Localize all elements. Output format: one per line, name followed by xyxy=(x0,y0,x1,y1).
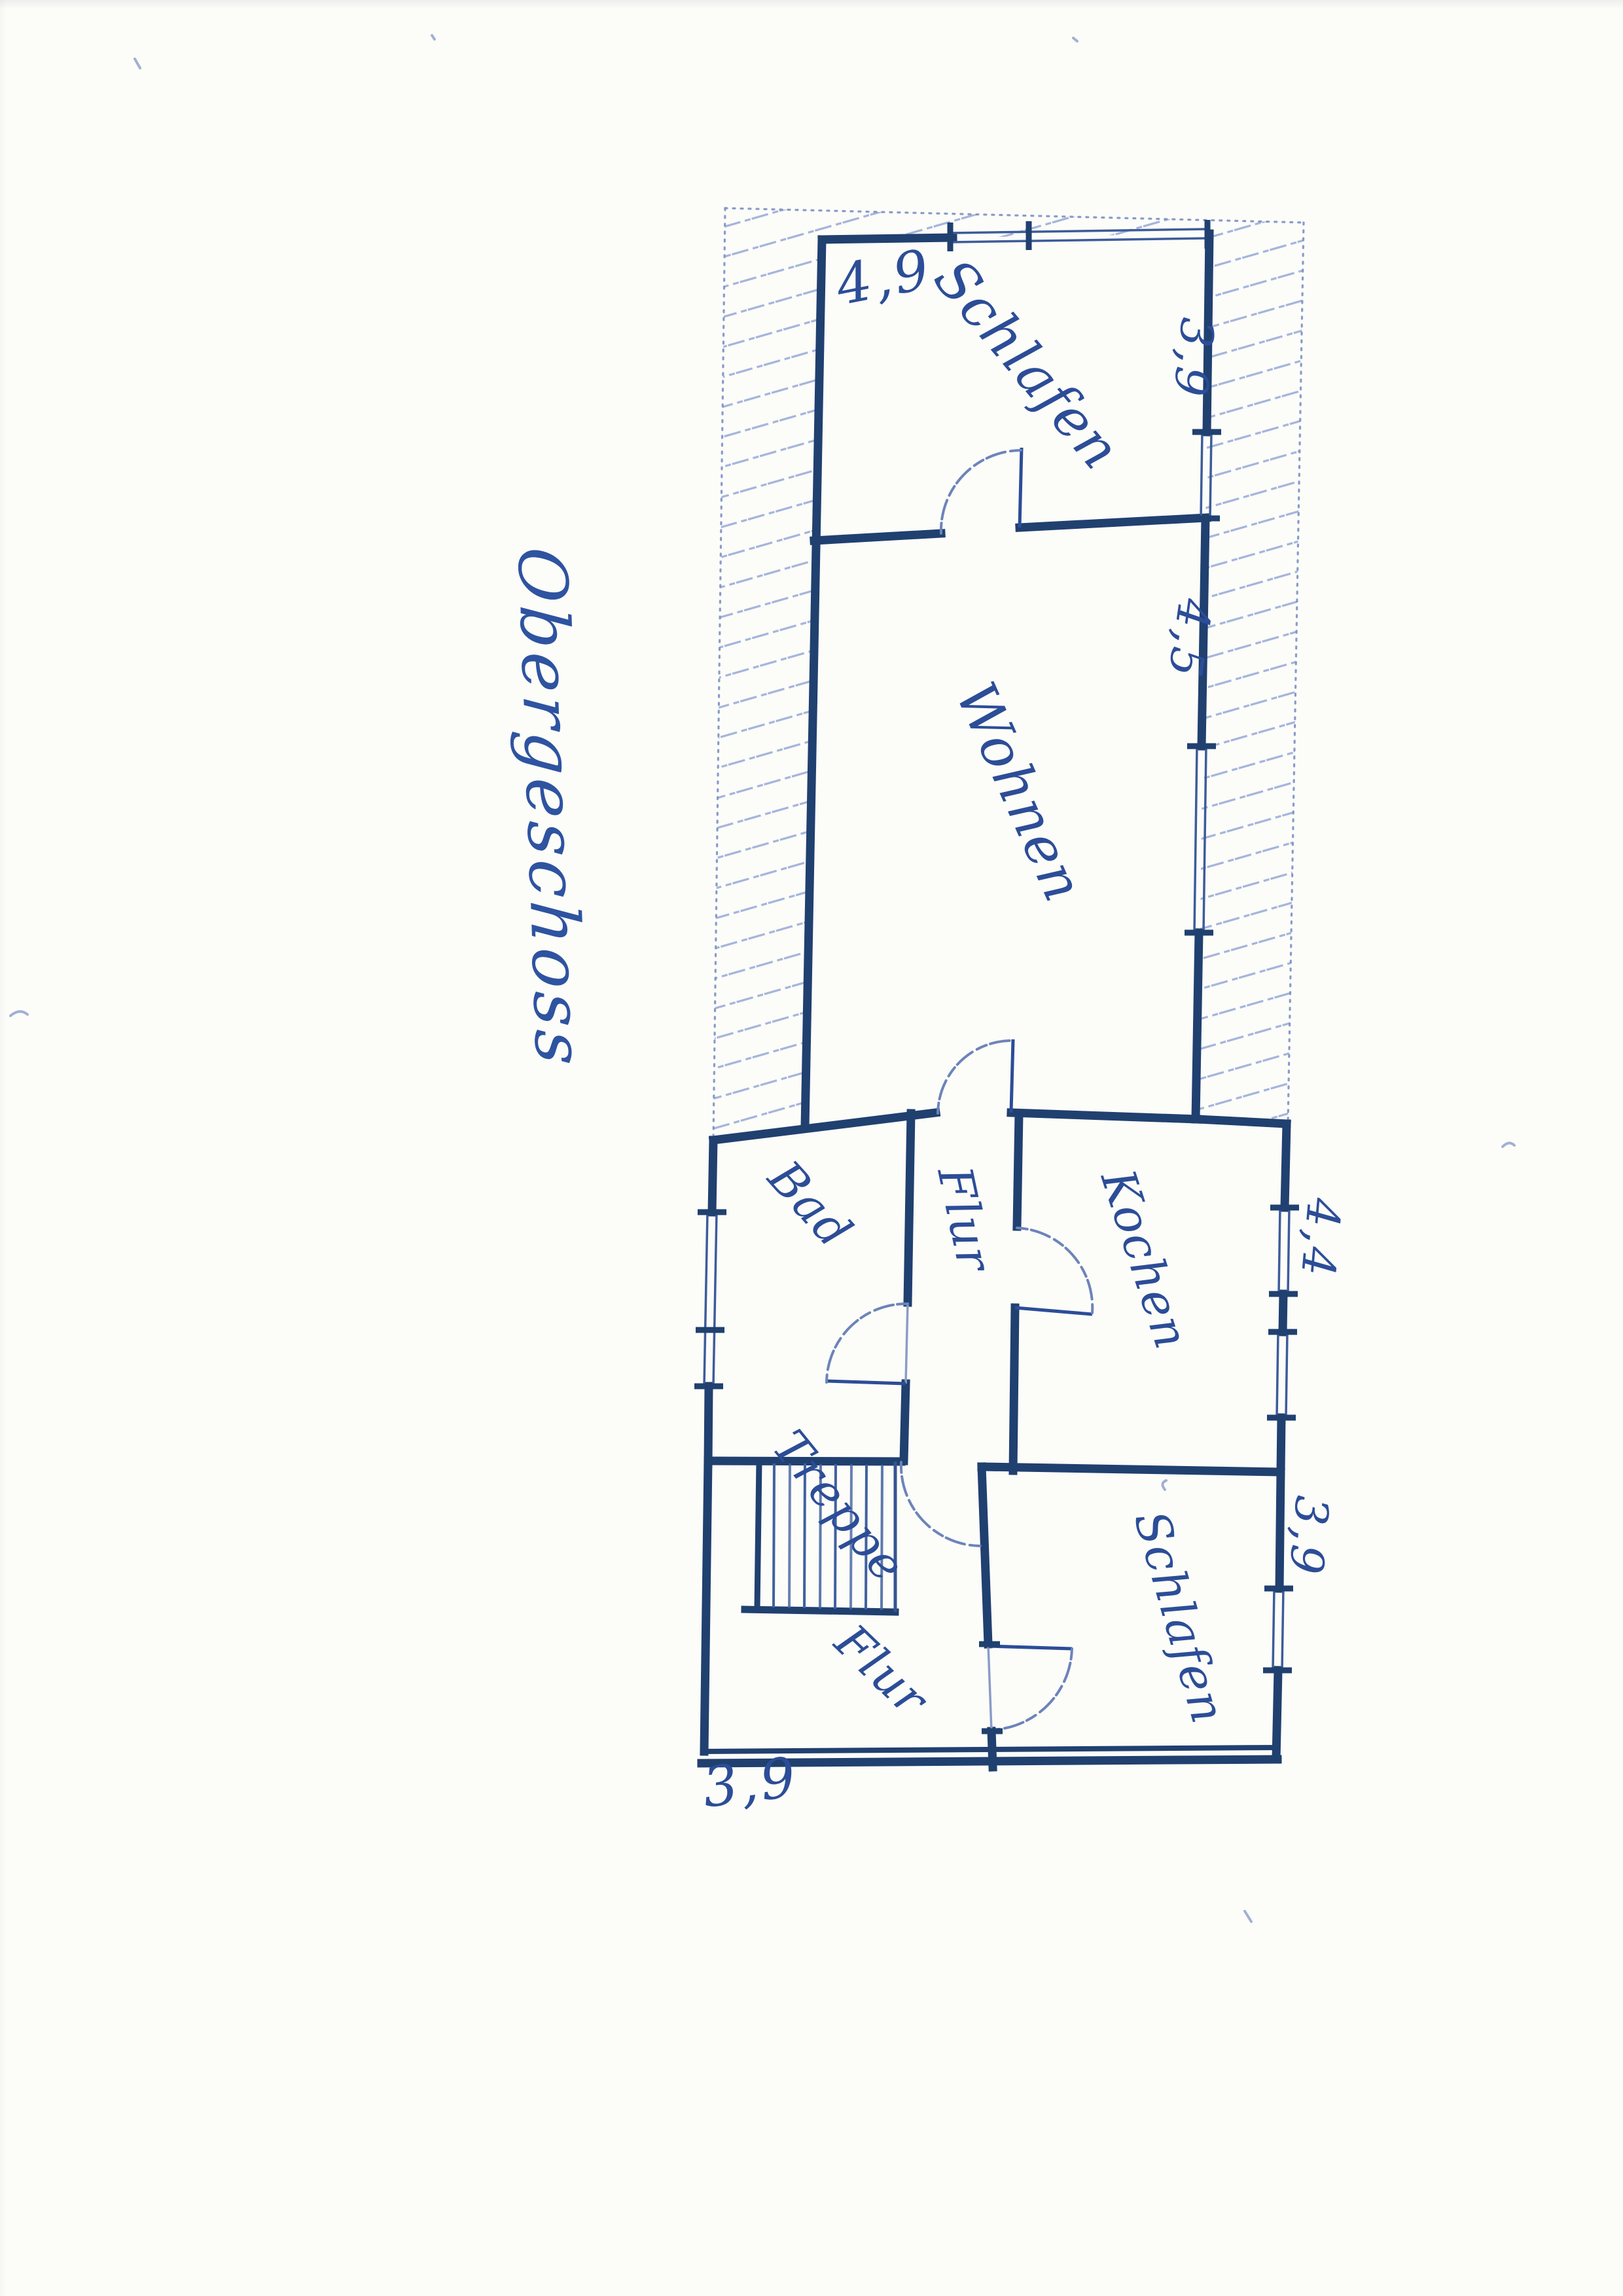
wall-kochen-top xyxy=(1198,1119,1287,1124)
room-label-kochen: Kochen xyxy=(1090,1162,1200,1356)
door-kochen xyxy=(1015,1228,1092,1314)
wall-bad-left-upper xyxy=(712,1140,713,1212)
window-schlafen-unten-right xyxy=(1263,1588,1293,1670)
speck-right-margin xyxy=(1503,1143,1514,1147)
room-label-bad: Bad xyxy=(757,1149,864,1259)
dim-top-width: 4,9 xyxy=(830,237,937,318)
speck-bottom xyxy=(1245,1911,1251,1922)
wall-wohnen-bottom-right xyxy=(1011,1113,1198,1119)
wall-right-lower xyxy=(1196,933,1199,1119)
window-bad-left xyxy=(694,1212,726,1386)
dim-schlafen-unten-depth: 3,9 xyxy=(1279,1494,1339,1579)
wall-bad-left-lower xyxy=(708,1386,709,1463)
dim-bottom-width: 3,9 xyxy=(699,1745,801,1820)
wall-kochen-right-lower xyxy=(1281,1418,1281,1472)
wall-top-left-segment xyxy=(822,238,953,240)
door-wohnen xyxy=(938,1039,1013,1113)
speck-left-margin xyxy=(10,1011,27,1016)
dim-wohnen-depth: 4,5 xyxy=(1158,595,1222,683)
wall-kochen-right-upper xyxy=(1285,1124,1287,1208)
room-label-schlafen-unten: Schlafen xyxy=(1124,1505,1237,1730)
door-bad xyxy=(827,1302,908,1384)
page-title: Obergeschoss xyxy=(502,545,598,1071)
room-label-treppe: Treppe xyxy=(762,1420,916,1592)
room-label-flur-unten: Flur xyxy=(824,1613,940,1727)
wall-divider-flur-kochen-upper xyxy=(1017,1114,1019,1227)
stair-bottom-edge xyxy=(745,1609,895,1612)
room-label-schlafen-top: Schlafen xyxy=(921,247,1133,482)
speck-top-left xyxy=(135,59,140,68)
wall-divider-flur-schlafen-unten xyxy=(982,1467,988,1644)
wall-divider-schlafen-wohnen-right xyxy=(1020,518,1207,528)
wall-divider-flur-kochen-lower xyxy=(1013,1308,1015,1471)
wall-divider-bad-flur-lower xyxy=(904,1384,906,1461)
dim-schlafen-top-depth: 3,9 xyxy=(1163,315,1224,401)
speck-top-center xyxy=(432,35,435,39)
wall-divider-bad-flur-upper xyxy=(908,1113,911,1302)
room-label-flur-mitte: Flur xyxy=(927,1160,1003,1278)
stair-left-edge xyxy=(757,1462,759,1609)
floorplan-canvas: Obergeschoss Schlafen Wohnen Bad Flur Ko… xyxy=(0,0,1623,2296)
room-label-wohnen: Wohnen xyxy=(943,673,1096,911)
scanned-floorplan-page: Obergeschoss Schlafen Wohnen Bad Flur Ko… xyxy=(0,0,1623,2296)
dim-kochen-depth: 4,4 xyxy=(1291,1195,1351,1281)
speck-top-right xyxy=(1073,38,1077,41)
speck-below-kochen xyxy=(1162,1480,1166,1490)
wall-lower-band-top xyxy=(982,1467,1281,1472)
wall-divider-schlafen-wohnen-left xyxy=(814,533,941,541)
wall-kochen-right-mid xyxy=(1283,1294,1283,1332)
wall-flur-unten-left xyxy=(704,1461,708,1751)
door-schlafen-unten xyxy=(979,1644,1072,1731)
door-flur-mitte xyxy=(901,1462,984,1546)
door-schlafen-top xyxy=(941,448,1022,533)
